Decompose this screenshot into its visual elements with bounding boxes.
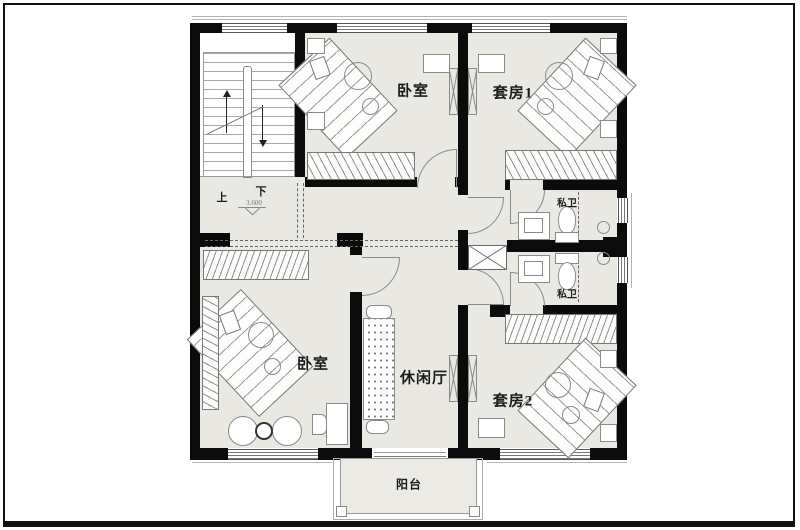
- bookshelf: [203, 250, 309, 280]
- desk-chair: [312, 414, 327, 435]
- wall-segment: [617, 23, 627, 198]
- stair-arrow-down: [259, 140, 267, 151]
- wall-segment: [458, 230, 468, 270]
- stair-up-label: 上: [217, 189, 228, 205]
- sill-line: [487, 462, 627, 463]
- room-label-bath2: 私卫: [557, 286, 577, 301]
- beam-line: [205, 240, 458, 241]
- stair-rail: [243, 66, 252, 178]
- nightstand: [600, 38, 617, 54]
- window: [618, 257, 628, 283]
- wardrobe: [505, 150, 617, 180]
- wall-segment: [458, 33, 468, 195]
- bed-decor-circle: [264, 358, 281, 375]
- wall-segment: [192, 448, 228, 460]
- landing-line: [200, 176, 295, 177]
- stair-arrow-up: [223, 86, 231, 97]
- wall-segment: [458, 305, 468, 448]
- wall-segment: [287, 23, 337, 33]
- elevation-line: [238, 207, 266, 208]
- nightstand: [600, 120, 617, 138]
- tv-cross: [468, 68, 477, 115]
- bathroom-sink-basin: [524, 261, 543, 276]
- shelf-bottom-item: [366, 420, 389, 434]
- room-label-balcony: 阳台: [396, 476, 422, 493]
- room-label-suite2: 套房2: [493, 390, 534, 411]
- floor-drain: [597, 252, 610, 265]
- room-label-lounge: 休闲厅: [400, 367, 448, 388]
- side-table: [255, 422, 273, 440]
- sill-line: [192, 462, 332, 463]
- shelf-unit: [363, 318, 395, 420]
- sill-line: [192, 19, 627, 20]
- tv-cross: [449, 68, 458, 115]
- bed-decor-circle: [562, 406, 580, 424]
- wall-segment: [350, 292, 362, 448]
- wardrobe: [307, 152, 415, 180]
- toilet-tank: [555, 232, 579, 243]
- window: [222, 23, 287, 33]
- window: [618, 198, 628, 223]
- tv-cross: [468, 355, 477, 402]
- frame-right: [793, 3, 795, 522]
- sill-line: [192, 16, 627, 17]
- bed-decor-circle: [248, 322, 274, 348]
- bed-decor-circle: [545, 372, 571, 398]
- frame-top: [3, 3, 795, 5]
- floor-drain: [597, 221, 610, 234]
- tv-cabinet: [478, 54, 505, 73]
- wall-segment: [350, 247, 362, 255]
- tv-cross: [449, 355, 458, 402]
- bed-decor-circle: [362, 98, 379, 115]
- desk: [326, 403, 348, 445]
- stair-arrow-stem: [262, 105, 263, 141]
- room-label-bath1: 私卫: [557, 195, 577, 210]
- wardrobe: [202, 296, 219, 410]
- beam-line: [297, 183, 298, 238]
- nightstand: [600, 350, 617, 368]
- window: [472, 23, 550, 33]
- nightstand: [600, 424, 617, 442]
- bed-decor-circle: [537, 98, 554, 115]
- tv-cabinet: [423, 54, 450, 73]
- nightstand: [307, 112, 325, 130]
- window: [337, 23, 427, 33]
- stair-arrow-stem: [226, 95, 227, 133]
- balcony-post: [336, 506, 347, 517]
- toilet: [558, 206, 576, 234]
- shelf-top-item: [366, 305, 392, 319]
- room-label-bedroom-top: 卧室: [397, 80, 429, 101]
- bookshelf: [505, 314, 617, 344]
- balcony-threshold: [374, 452, 446, 453]
- bed-decor-circle: [344, 62, 372, 90]
- window: [500, 449, 590, 460]
- room-label-suite1: 套房1: [493, 82, 534, 103]
- beam-line: [303, 183, 304, 238]
- frame-left: [3, 3, 5, 522]
- nightstand: [307, 38, 325, 54]
- floor-plan-canvas: 上 下 3.600: [0, 0, 800, 530]
- bed-decor-circle: [545, 62, 573, 90]
- beam-line: [205, 246, 458, 247]
- wall-segment: [590, 448, 627, 460]
- wall-segment: [550, 23, 627, 33]
- shaft-box: [468, 245, 507, 270]
- elevation-value: 3.600: [246, 199, 262, 207]
- frame-bottom: [3, 521, 795, 527]
- sill-line: [631, 193, 632, 288]
- balcony-threshold: [374, 456, 446, 457]
- room-label-bedroom-bottom: 卧室: [297, 353, 329, 374]
- window: [228, 449, 318, 460]
- tv-cabinet: [478, 418, 505, 438]
- chair: [228, 416, 258, 446]
- stair-down-label: 下: [256, 183, 267, 199]
- chair: [272, 416, 302, 446]
- bathroom-sink-basin: [524, 218, 543, 233]
- wall-segment: [427, 23, 472, 33]
- balcony-post: [469, 506, 480, 517]
